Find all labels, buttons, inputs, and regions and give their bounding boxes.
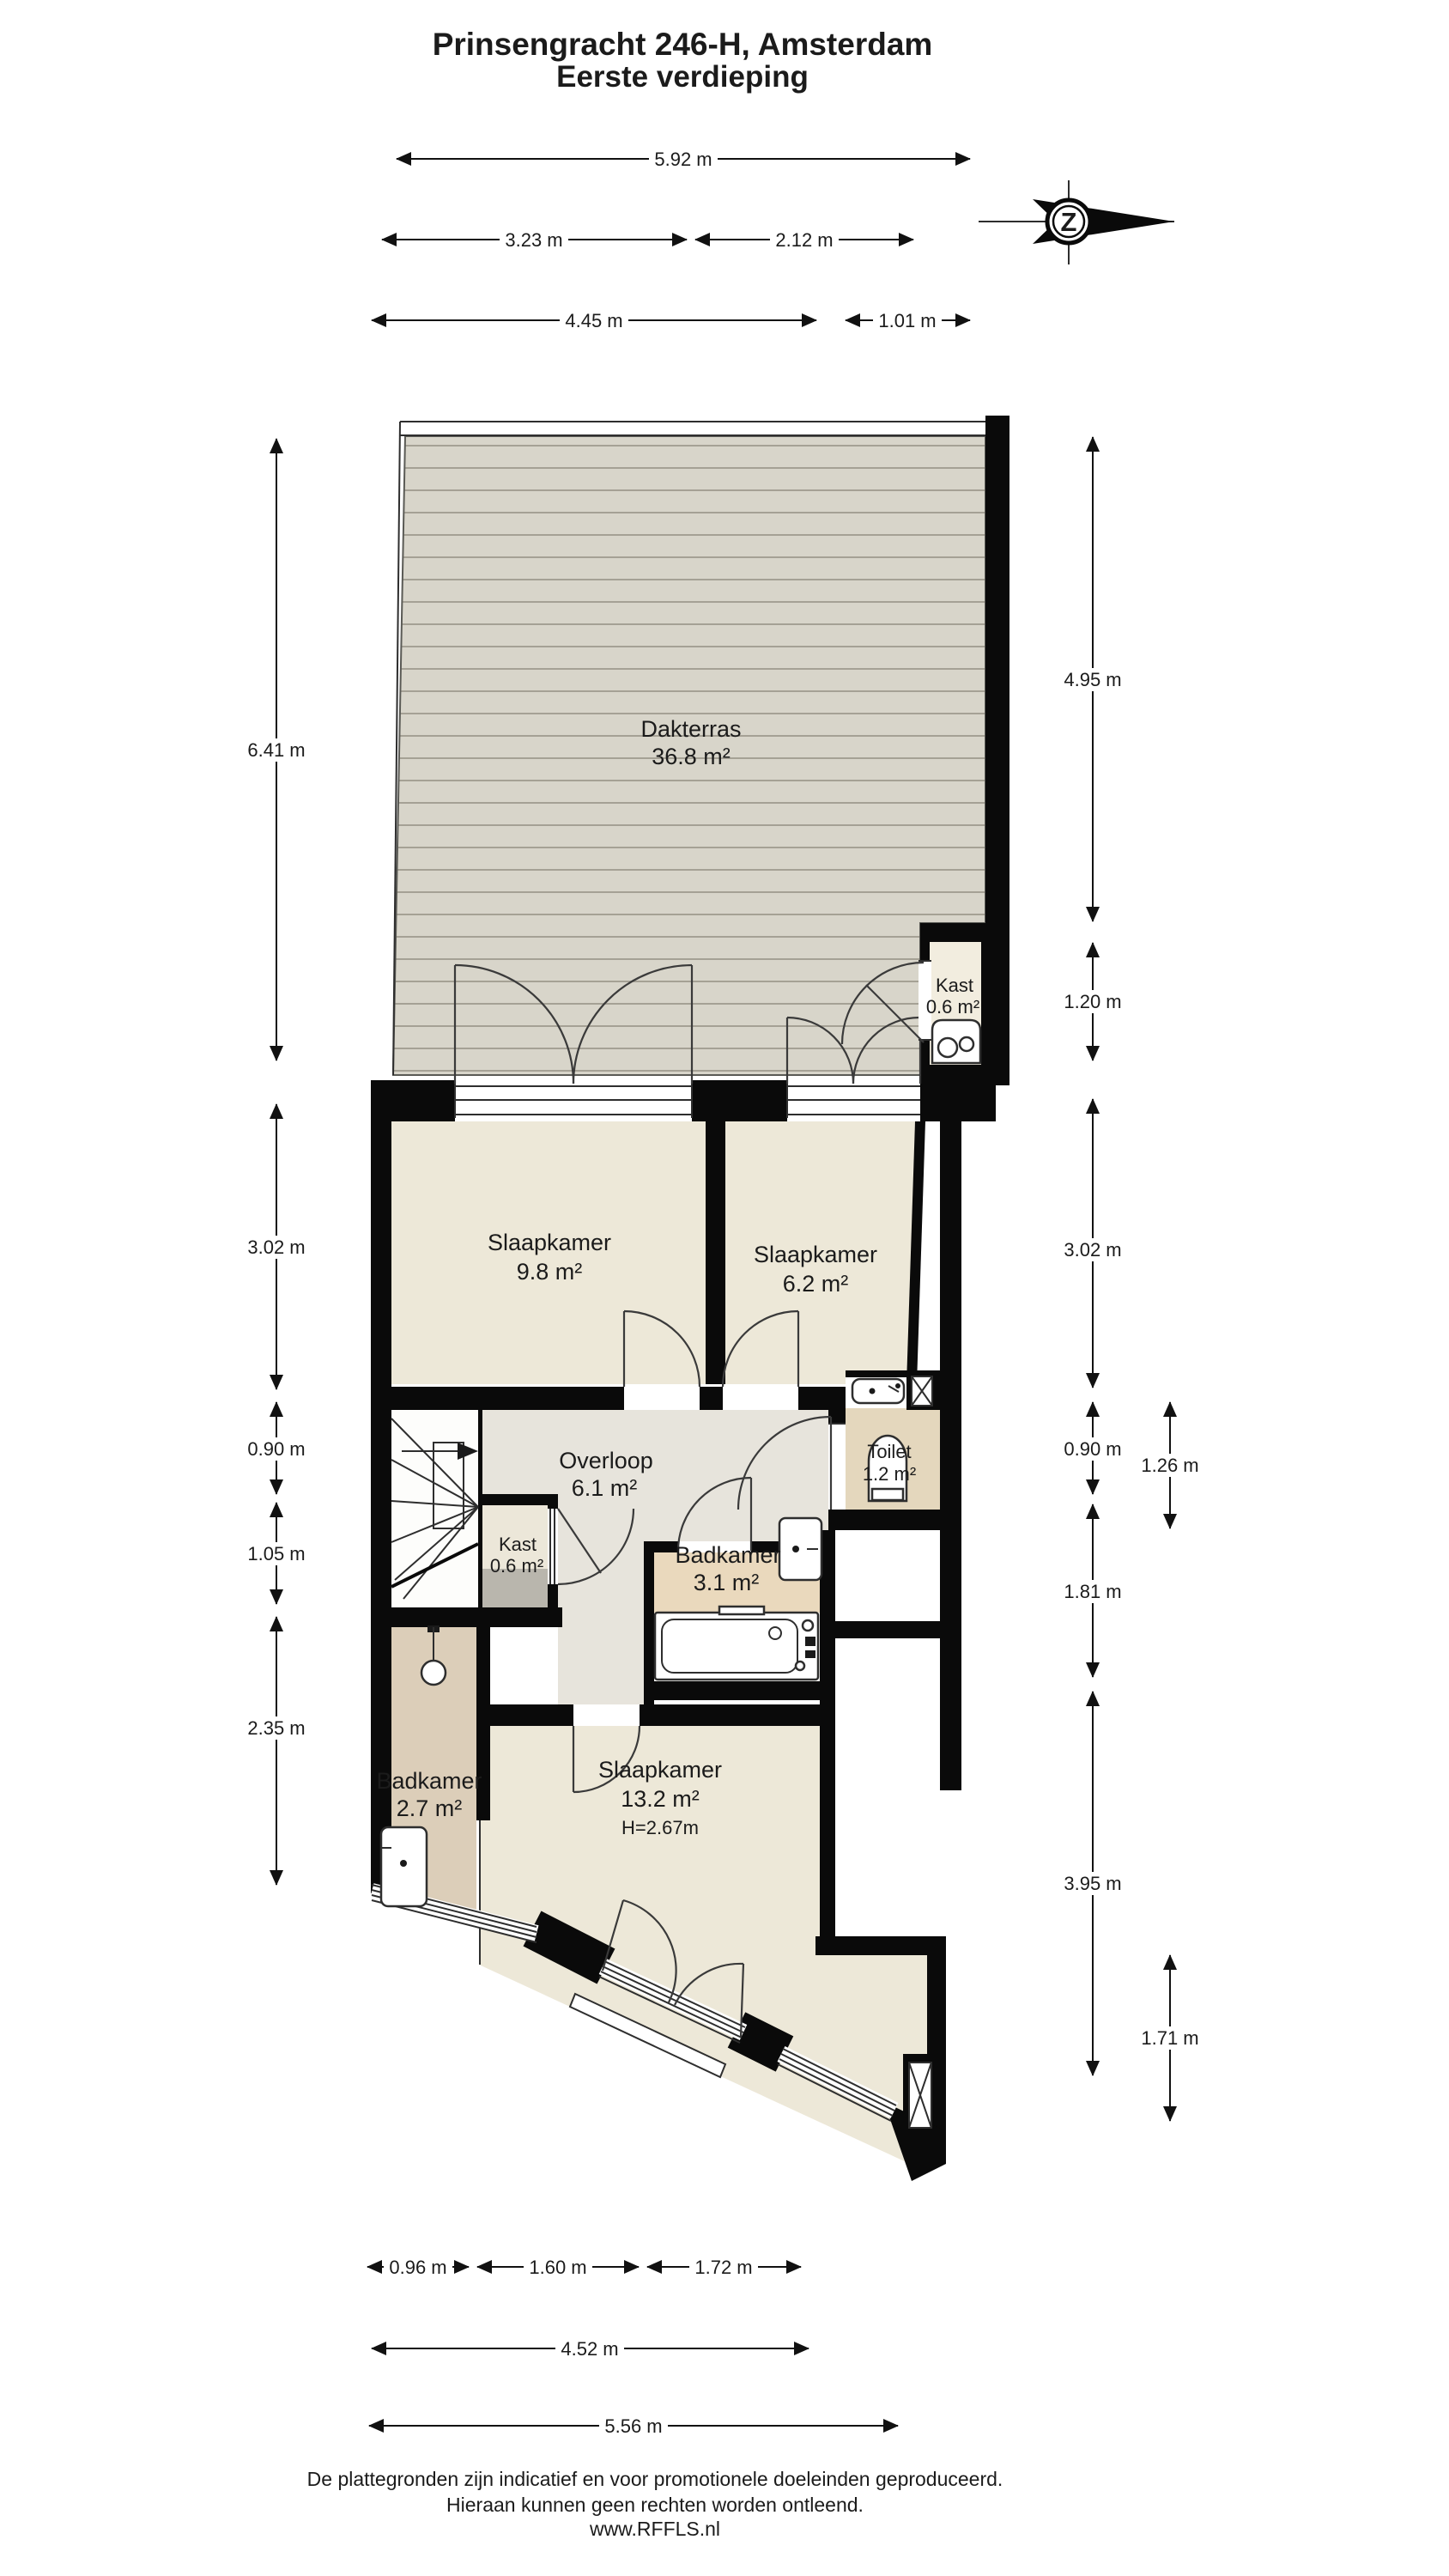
slaapkamer3-height: H=2.67m <box>621 1817 699 1838</box>
dim-label: 1.72 m <box>694 2257 752 2278</box>
dim-right-7: 3.95 m <box>1058 1692 1127 2075</box>
slaapkamer1-name: Slaapkamer <box>488 1230 611 1255</box>
terrace-door-threshold-left <box>455 1084 692 1118</box>
bathtub-icon <box>655 1607 818 1680</box>
dim-label: 1.01 m <box>878 310 936 331</box>
washbasin-onder-icon <box>381 1827 427 1906</box>
dim-right-5: 1.26 m <box>1136 1402 1204 1528</box>
dim-bottom-2: 1.60 m <box>477 2256 639 2279</box>
dim-label: 2.12 m <box>775 229 833 251</box>
footer-line2: Hieraan kunnen geen rechten worden ontle… <box>446 2494 864 2516</box>
north-arrow-icon: Z <box>979 180 1174 264</box>
overloop-area: 6.1 m² <box>572 1475 638 1501</box>
dim-label: 5.92 m <box>654 149 712 170</box>
dim-bottom-5: 5.56 m <box>369 2415 898 2438</box>
kast-terras-area: 0.6 m² <box>926 996 979 1018</box>
dim-label: 1.05 m <box>247 1543 305 1564</box>
floorplan-canvas: Prinsengracht 246-H, Amsterdam Eerste ve… <box>0 0 1449 2576</box>
kast-hal-name: Kast <box>499 1534 537 1555</box>
slaapkamer2-name: Slaapkamer <box>754 1242 877 1267</box>
dim-left-2: 3.02 m <box>242 1104 311 1389</box>
footer-line1: De plattegronden zijn indicatief en voor… <box>307 2468 1003 2490</box>
bottom-right-window-icon <box>909 2063 931 2128</box>
washbasin-boven-icon <box>779 1518 822 1580</box>
footer-disclaimer: De plattegronden zijn indicatief en voor… <box>307 2468 1003 2540</box>
dim-label: 0.90 m <box>247 1438 305 1460</box>
toilet-area: 1.2 m² <box>863 1463 916 1485</box>
dim-top-4: 4.45 m <box>372 309 816 332</box>
overloop-name: Overloop <box>559 1448 653 1473</box>
terrace-door-threshold-right <box>787 1084 920 1118</box>
dim-label: 3.23 m <box>505 229 562 251</box>
toilet-sink-icon <box>852 1379 904 1403</box>
dim-label: 2.35 m <box>247 1717 305 1739</box>
dim-bottom-4: 4.52 m <box>372 2337 809 2360</box>
boiler-icon <box>932 1020 980 1063</box>
dim-right-3: 3.02 m <box>1058 1099 1127 1388</box>
dim-label: 1.81 m <box>1064 1581 1121 1602</box>
dim-label: 1.26 m <box>1141 1455 1198 1476</box>
dim-label: 4.95 m <box>1064 669 1121 690</box>
dim-left-1: 6.41 m <box>242 439 311 1060</box>
dim-left-3: 0.90 m <box>242 1402 311 1494</box>
dakterras-name: Dakterras <box>640 716 741 742</box>
dim-label: 1.71 m <box>1141 2027 1198 2049</box>
dim-bottom-3: 1.72 m <box>647 2256 801 2279</box>
dim-left-5: 2.35 m <box>242 1617 311 1885</box>
dim-right-1: 4.95 m <box>1058 437 1127 921</box>
dim-label: 5.56 m <box>604 2415 662 2437</box>
toilet-window-icon <box>912 1376 932 1406</box>
compass-letter: Z <box>1061 207 1077 237</box>
dim-label: 0.90 m <box>1064 1438 1121 1460</box>
dim-label: 3.02 m <box>247 1236 305 1258</box>
dim-right-2: 1.20 m <box>1058 943 1127 1060</box>
dim-top-5: 1.01 m <box>846 309 970 332</box>
dim-label: 3.95 m <box>1064 1873 1121 1894</box>
dim-top-1: 5.92 m <box>397 148 970 171</box>
badkamer-boven-area: 3.1 m² <box>694 1570 760 1595</box>
dim-top-3: 2.12 m <box>695 228 913 252</box>
dim-label: 4.52 m <box>561 2338 618 2360</box>
kast-terras-name: Kast <box>936 975 973 996</box>
title-line1: Prinsengracht 246-H, Amsterdam <box>433 27 933 62</box>
kast-hal-area: 0.6 m² <box>490 1555 543 1577</box>
dim-right-6: 1.81 m <box>1058 1504 1127 1677</box>
slaapkamer3-area: 13.2 m² <box>621 1786 700 1812</box>
badkamer-boven-name: Badkamer <box>675 1542 780 1568</box>
dim-left-4: 1.05 m <box>242 1503 311 1604</box>
slaapkamer1-area: 9.8 m² <box>517 1259 583 1285</box>
slaapkamer3-name: Slaapkamer <box>598 1757 722 1783</box>
dakterras-area: 36.8 m² <box>652 744 731 769</box>
slaapkamer2-area: 6.2 m² <box>783 1271 849 1297</box>
toilet-name: Toilet <box>867 1441 911 1462</box>
dim-top-2: 3.23 m <box>382 228 687 252</box>
page-title: Prinsengracht 246-H, Amsterdam Eerste ve… <box>433 27 933 94</box>
dim-label: 1.20 m <box>1064 991 1121 1012</box>
dim-right-4: 0.90 m <box>1058 1402 1127 1494</box>
badkamer-onder-name: Badkamer <box>376 1768 482 1794</box>
dim-label: 3.02 m <box>1064 1239 1121 1261</box>
dim-label: 6.41 m <box>247 739 305 761</box>
dim-bottom-1: 0.96 m <box>367 2256 469 2279</box>
dim-label: 4.45 m <box>565 310 622 331</box>
badkamer-onder-area: 2.7 m² <box>397 1795 463 1821</box>
footer-line3: www.RFFLS.nl <box>589 2518 720 2540</box>
title-line2: Eerste verdieping <box>556 60 809 94</box>
stairs-floor <box>391 1410 478 1607</box>
dim-label: 0.96 m <box>389 2257 446 2278</box>
dim-right-8: 1.71 m <box>1136 1955 1204 2121</box>
dim-label: 1.60 m <box>529 2257 586 2278</box>
